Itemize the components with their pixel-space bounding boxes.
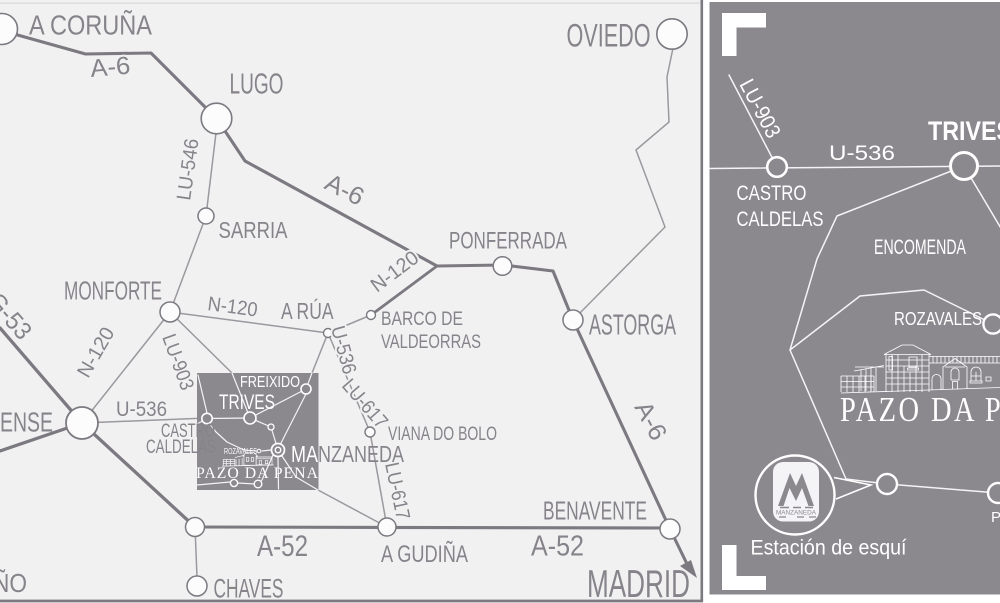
svg-text:VALDEORRAS: VALDEORRAS bbox=[381, 332, 481, 353]
svg-text:ROZAVALES: ROZAVALES bbox=[894, 308, 982, 329]
svg-text:BARCO DE: BARCO DE bbox=[381, 309, 463, 330]
svg-text:OVIEDO: OVIEDO bbox=[567, 18, 651, 54]
svg-text:PONFERRADA: PONFERRADA bbox=[449, 228, 567, 255]
svg-text:PAZO DA PE: PAZO DA PE bbox=[840, 390, 1000, 429]
svg-text:CALDELAS: CALDELAS bbox=[737, 207, 824, 231]
svg-text:ENCOMENDA: ENCOMENDA bbox=[874, 235, 966, 259]
svg-text:CALDELAS: CALDELAS bbox=[146, 437, 216, 458]
svg-text:A-6: A-6 bbox=[89, 52, 131, 83]
svg-text:ÑO: ÑO bbox=[0, 568, 27, 598]
svg-text:LUGO: LUGO bbox=[230, 69, 284, 101]
svg-text:A RÚA: A RÚA bbox=[281, 298, 334, 324]
svg-text:VIANA DO BOLO: VIANA DO BOLO bbox=[388, 424, 497, 445]
svg-text:CASTRO: CASTRO bbox=[737, 181, 807, 205]
svg-text:MADRID: MADRID bbox=[587, 563, 690, 603]
svg-text:ASTORGA: ASTORGA bbox=[589, 310, 676, 342]
svg-text:TRIVES: TRIVES bbox=[928, 116, 1000, 146]
svg-text:CHAVES: CHAVES bbox=[214, 574, 284, 603]
svg-text:A CORUÑA: A CORUÑA bbox=[29, 10, 152, 41]
svg-text:MONFORTE: MONFORTE bbox=[64, 276, 162, 306]
svg-text:BENAVENTE: BENAVENTE bbox=[543, 498, 647, 526]
svg-text:A-52: A-52 bbox=[257, 530, 308, 563]
svg-text:A GUDIÑA: A GUDIÑA bbox=[381, 541, 468, 568]
svg-text:SARRIA: SARRIA bbox=[219, 217, 288, 243]
svg-text:U-536: U-536 bbox=[116, 398, 167, 421]
svg-text:P: P bbox=[991, 509, 1000, 526]
svg-text:ROZAVALES: ROZAVALES bbox=[224, 447, 257, 456]
svg-text:TRIVES: TRIVES bbox=[219, 391, 275, 414]
svg-text:ENSE: ENSE bbox=[0, 407, 53, 438]
svg-text:U-536: U-536 bbox=[829, 141, 895, 165]
svg-text:Estación de esquí: Estación de esquí bbox=[751, 536, 907, 560]
svg-text:A-52: A-52 bbox=[531, 531, 584, 563]
svg-text:PAZO DA PENA: PAZO DA PENA bbox=[196, 465, 319, 482]
svg-text:FREIXIDO: FREIXIDO bbox=[240, 374, 300, 391]
svg-text:MANZANEDA: MANZANEDA bbox=[776, 510, 817, 517]
